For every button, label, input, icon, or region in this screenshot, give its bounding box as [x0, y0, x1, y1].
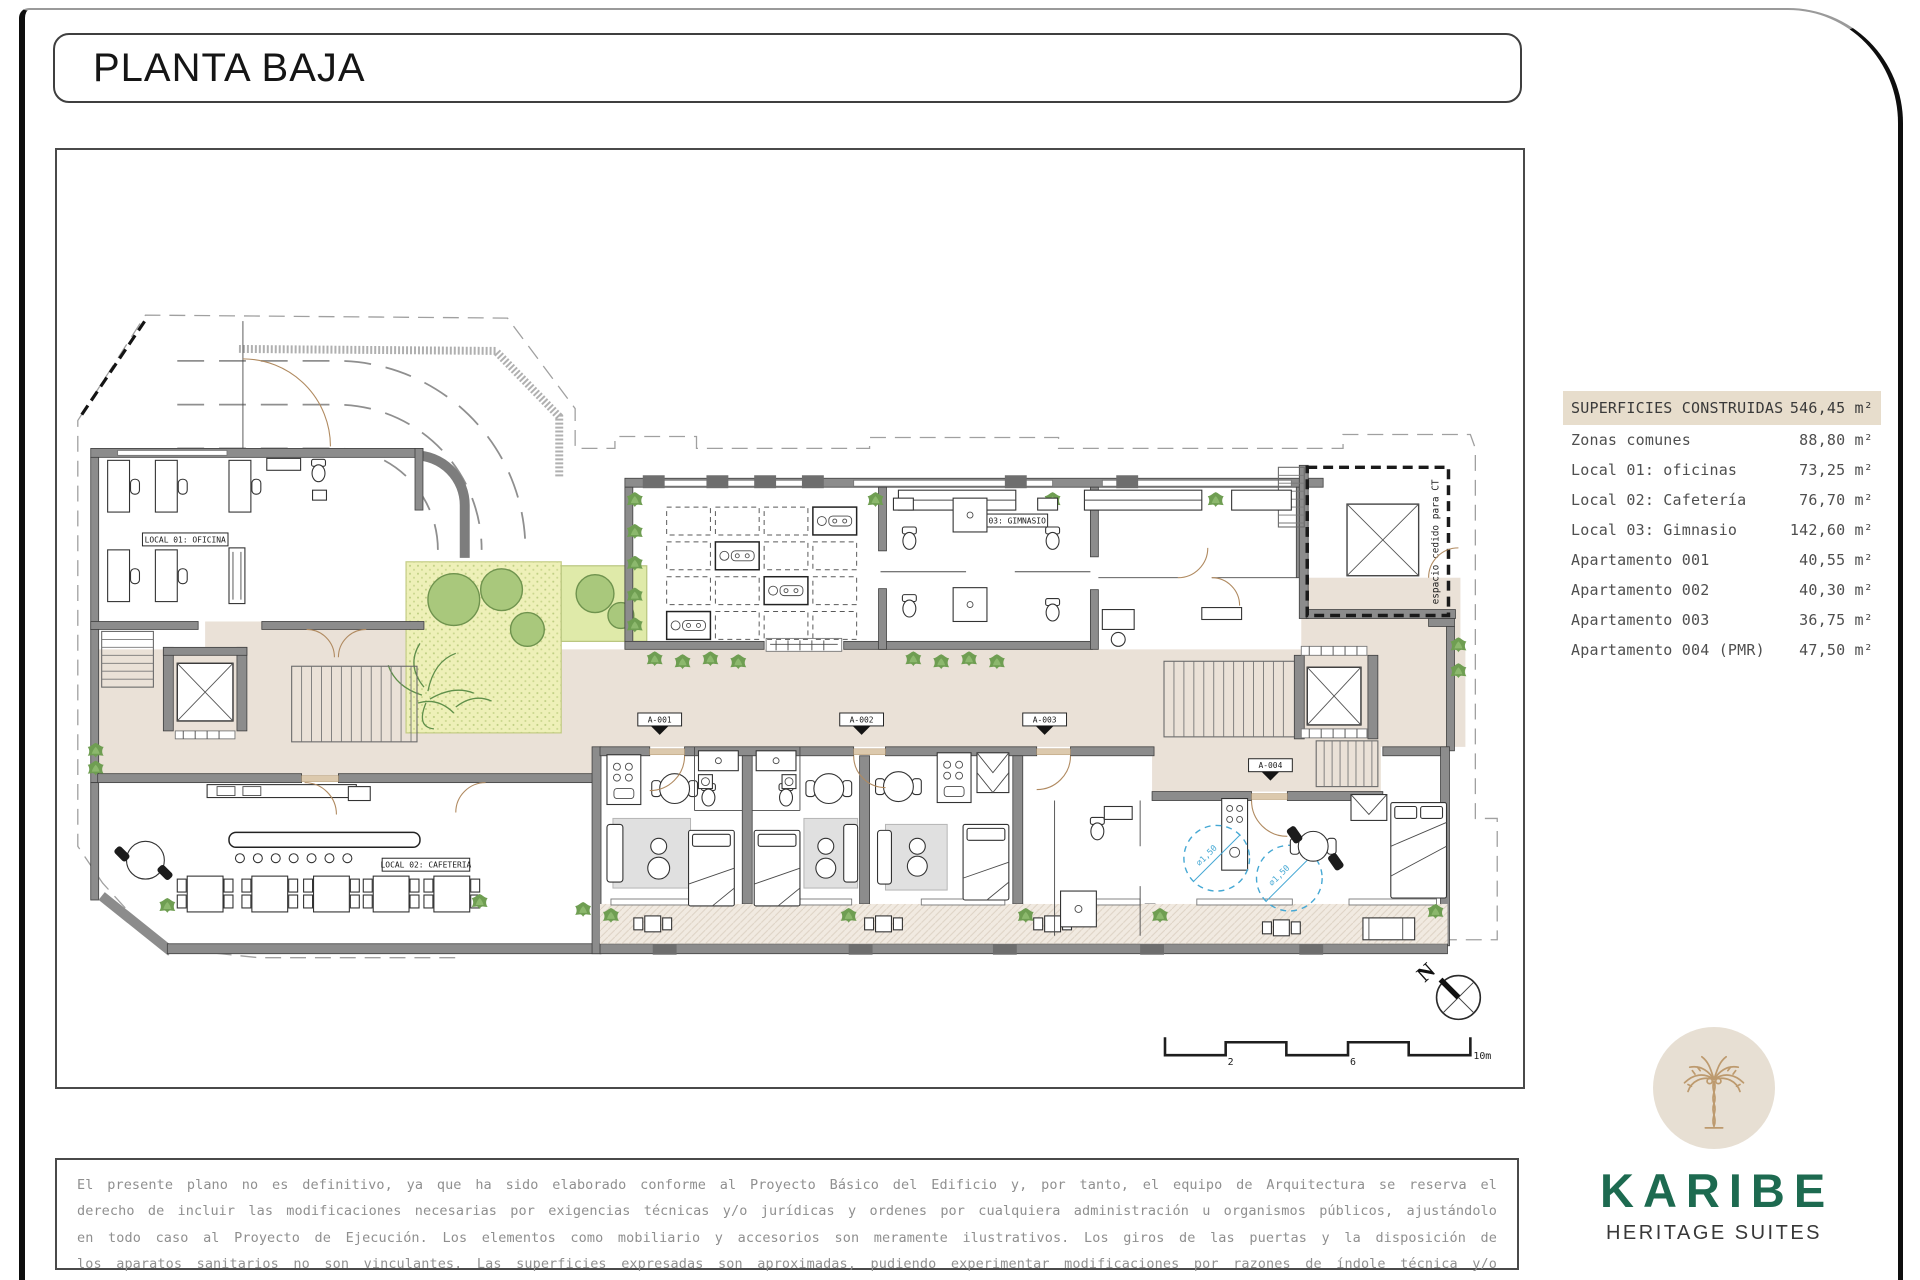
table-row: Apartamento 004 (PMR) 47,50 m² [1563, 635, 1881, 665]
ct-space-label: espacio cedido para CT [1431, 479, 1442, 604]
surfaces-header-label: SUPERFICIES CONSTRUIDAS [1571, 399, 1783, 417]
brand-logo: KARIBE HERITAGE SUITES [1594, 1027, 1834, 1245]
surfaces-table: SUPERFICIES CONSTRUIDAS 546,45 m² Zonas … [1563, 391, 1881, 665]
local02-label: LOCAL 02: CAFETERIA [381, 861, 472, 870]
surfaces-header-value: 546,45 m² [1790, 399, 1873, 417]
svg-text:A-003: A-003 [1033, 715, 1057, 724]
local01-label: LOCAL 01: OFICINA [145, 535, 226, 544]
north-label: N [1412, 958, 1440, 987]
disclaimer-box: El presente plano no es definitivo, ya q… [55, 1158, 1519, 1270]
table-row: Apartamento 003 36,75 m² [1563, 605, 1881, 635]
svg-text:A-002: A-002 [850, 715, 874, 724]
table-row: Zonas comunes 88,80 m² [1563, 425, 1881, 455]
table-row: Apartamento 002 40,30 m² [1563, 575, 1881, 605]
scale-tick-6: 6 [1350, 1057, 1356, 1068]
surfaces-header-row: SUPERFICIES CONSTRUIDAS 546,45 m² [1563, 391, 1881, 425]
floor-plan: espacio cedido para CT LOCAL 01: OFICINA [57, 150, 1523, 1087]
gym-bench-icon [667, 612, 711, 640]
table-row: Apartamento 001 40,55 m² [1563, 545, 1881, 575]
scale-bar: 2 6 10m [1165, 1037, 1491, 1068]
table-row: Local 01: oficinas 73,25 m² [1563, 455, 1881, 485]
brand-tagline: HERITAGE SUITES [1594, 1222, 1834, 1245]
gym-bench-icon [764, 577, 808, 605]
pmr-circle-label: ⌀1,50 [1194, 843, 1219, 868]
disclaimer-text: El presente plano no es definitivo, ya q… [77, 1172, 1497, 1280]
gym-bench-icon [715, 542, 759, 570]
scale-tick-2: 2 [1228, 1057, 1234, 1068]
table-row: Local 02: Cafetería 76,70 m² [1563, 485, 1881, 515]
palm-tree-icon [1662, 1036, 1766, 1140]
pmr-circle-label: ⌀1,50 [1267, 863, 1292, 888]
driveway-ramp [177, 321, 559, 558]
svg-text:A-001: A-001 [648, 715, 672, 724]
floor-plan-frame: espacio cedido para CT LOCAL 01: OFICINA [55, 148, 1525, 1089]
title-box: PLANTA BAJA [53, 33, 1522, 103]
sheet: PLANTA BAJA [0, 0, 1920, 1280]
page-title: PLANTA BAJA [55, 35, 1520, 101]
north-arrow: N [1412, 958, 1480, 1019]
cafeteria-local02: LOCAL 02: CAFETERIA [113, 776, 591, 917]
svg-text:A-004: A-004 [1258, 761, 1282, 770]
scale-tick-10m: 10m [1473, 1051, 1491, 1062]
gym-bench-icon [813, 507, 857, 535]
brand-name: KARIBE [1600, 1163, 1834, 1218]
table-row: Local 03: Gimnasio 142,60 m² [1563, 515, 1881, 545]
logo-circle [1653, 1027, 1775, 1149]
